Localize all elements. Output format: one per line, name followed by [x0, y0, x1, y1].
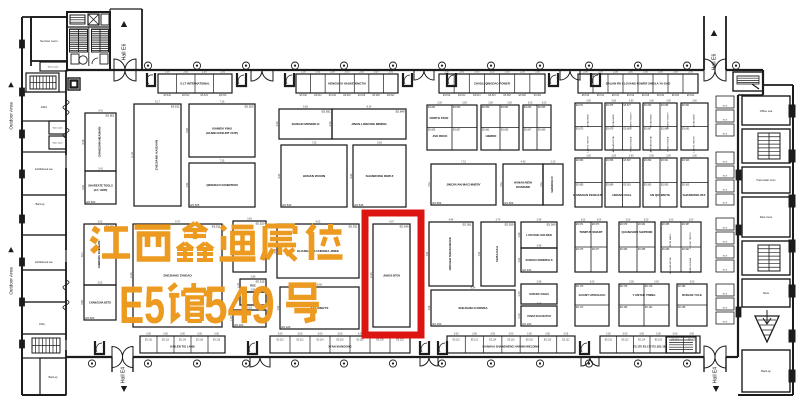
- svg-text:LUOHE TENGYI: LUOHE TENGYI: [690, 232, 692, 249]
- svg-text:E5.865: E5.865: [501, 130, 509, 132]
- svg-text:3.00: 3.00: [692, 101, 697, 103]
- svg-text:3.00: 3.00: [462, 103, 467, 105]
- svg-text:QINGDAO FANBITION: QINGDAO FANBITION: [206, 183, 237, 187]
- svg-text:E5.905: E5.905: [661, 185, 669, 187]
- svg-text:3.00: 3.00: [165, 71, 170, 74]
- svg-text:Store room: Store room: [53, 127, 63, 130]
- svg-text:E5.810: E5.810: [164, 95, 172, 97]
- svg-text:E5.511: E5.511: [212, 225, 221, 229]
- svg-text:2.20: 2.20: [518, 313, 521, 318]
- svg-text:E5.563: E5.563: [505, 201, 514, 205]
- svg-text:QUANZHOU SHIPFIND: QUANZHOU SHIPFIND: [622, 230, 653, 234]
- svg-text:Outdoor Area: Outdoor Area: [9, 267, 14, 295]
- svg-text:E5.116: E5.116: [507, 340, 515, 342]
- svg-text:3.96: 3.96: [537, 219, 542, 222]
- svg-text:3.63: 3.63: [82, 185, 85, 190]
- svg-text:3.00: 3.00: [202, 71, 207, 74]
- svg-text:E5.865: E5.865: [538, 107, 546, 109]
- svg-text:E5.829: E5.829: [245, 105, 254, 109]
- svg-text:E5.9: E5.9: [723, 294, 728, 296]
- svg-text:E5.863: E5.863: [524, 107, 532, 109]
- svg-text:3.00: 3.00: [545, 333, 550, 336]
- svg-text:E5.893: E5.893: [576, 160, 584, 162]
- svg-text:3.00: 3.00: [629, 156, 634, 158]
- svg-text:3.96: 3.96: [537, 303, 542, 306]
- svg-text:E5.812: E5.812: [458, 95, 466, 97]
- svg-text:Hall E4: Hall E4: [121, 367, 127, 383]
- svg-text:3.00: 3.00: [490, 71, 495, 74]
- svg-text:11.22: 11.22: [131, 151, 134, 157]
- svg-text:E5.112: E5.112: [162, 340, 170, 342]
- svg-text:3.00: 3.00: [490, 333, 495, 336]
- svg-text:E5.112: E5.112: [296, 340, 304, 342]
- svg-text:HEBEI RUNDA: HEBEI RUNDA: [689, 257, 692, 272]
- svg-text:(HUBEI EXSUNT OUP): (HUBEI EXSUNT OUP): [206, 131, 238, 135]
- svg-text:3.00: 3.00: [623, 333, 628, 336]
- svg-text:E5.812: E5.812: [182, 95, 190, 97]
- svg-text:E5.820: E5.820: [519, 95, 527, 97]
- svg-text:E5.891: E5.891: [682, 105, 690, 107]
- svg-text:E5.905: E5.905: [682, 185, 690, 187]
- svg-text:3.00: 3.00: [606, 333, 611, 336]
- svg-text:NORTH STAR: NORTH STAR: [430, 116, 450, 120]
- svg-text:E5.175 E5.177 E5.181-185: E5.175 E5.177 E5.181-185: [633, 344, 667, 348]
- svg-text:3.00: 3.00: [459, 71, 464, 74]
- svg-text:HAILEN TIG LANB: HAILEN TIG LANB: [170, 344, 194, 348]
- svg-text:E5.9: E5.9: [723, 106, 728, 108]
- svg-text:3.00: 3.00: [612, 101, 617, 103]
- svg-text:E5.112: E5.112: [621, 340, 629, 342]
- svg-text:3.00: 3.00: [488, 103, 493, 105]
- svg-text:SHAREATE TOOLS: SHAREATE TOOLS: [88, 184, 113, 188]
- svg-text:3.63: 3.63: [247, 218, 252, 221]
- svg-text:Store room: Store room: [48, 66, 59, 69]
- svg-text:E5.889: E5.889: [661, 129, 669, 131]
- svg-text:3.00: 3.00: [581, 220, 586, 222]
- svg-text:E5.855: E5.855: [428, 130, 436, 132]
- svg-text:ZHUOLI QINGDAO POWER: ZHUOLI QINGDAO POWER: [474, 82, 510, 86]
- svg-text:E5.818: E5.818: [504, 95, 512, 97]
- svg-text:JINTAI MACH: JINTAI MACH: [587, 114, 590, 128]
- svg-text:Store room: Store room: [53, 142, 63, 145]
- svg-text:DALIAN RH CLGUANG POWER SINOLA: DALIAN RH CLGUANG POWER SINOLA YA-GAO: [606, 82, 671, 86]
- svg-text:ZHEJIANG ZHIGAO: ZHEJIANG ZHIGAO: [163, 274, 192, 278]
- svg-text:JINCHUAN MACHINERY: JINCHUAN MACHINERY: [446, 183, 480, 187]
- svg-text:3.00: 3.00: [454, 333, 459, 336]
- svg-text:HUNAN WUXIN: HUNAN WUXIN: [303, 174, 326, 178]
- svg-text:E5.879: E5.879: [606, 129, 614, 131]
- svg-text:CHANGSHA BETO: CHANGSHA BETO: [89, 302, 111, 305]
- svg-text:AN QIU WEIYE: AN QIU WEIYE: [650, 193, 670, 197]
- svg-text:E5.110: E5.110: [276, 340, 284, 342]
- svg-text:JINTAI MACH: JINTAI MACH: [669, 233, 672, 247]
- svg-text:Exhibitioned use: Exhibitioned use: [35, 168, 53, 171]
- svg-text:Office use: Office use: [760, 109, 773, 113]
- svg-text:E5.114: E5.114: [638, 340, 646, 342]
- svg-text:E5.176: E5.176: [620, 286, 628, 288]
- svg-text:E5.873: E5.873: [576, 129, 584, 131]
- svg-text:3.00: 3.00: [220, 71, 225, 74]
- svg-text:SHANDONG DERUI: SHANDONG DERUI: [366, 174, 394, 178]
- svg-text:E5.875: E5.875: [606, 105, 614, 107]
- svg-text:3.00: 3.00: [520, 71, 525, 74]
- svg-text:5.83: 5.83: [186, 128, 189, 133]
- svg-text:E5.816: E5.816: [219, 95, 227, 97]
- svg-text:7.04: 7.04: [478, 251, 481, 256]
- svg-text:3.00: 3.00: [673, 71, 678, 74]
- svg-text:6.82: 6.82: [350, 173, 353, 178]
- svg-text:E5.9: E5.9: [723, 176, 728, 178]
- svg-text:E5.9: E5.9: [723, 322, 728, 324]
- svg-text:E5.810: E5.810: [582, 95, 590, 97]
- svg-text:E5.811: E5.811: [171, 105, 180, 109]
- svg-text:E5.9: E5.9: [723, 242, 728, 244]
- svg-text:3.00: 3.00: [475, 71, 480, 74]
- svg-text:JIANGSHA SHUANGSHUAN: JIANGSHA SHUANGSHUAN: [449, 237, 452, 270]
- svg-text:3.00: 3.00: [666, 156, 671, 158]
- svg-text:E5.172: E5.172: [576, 307, 584, 309]
- svg-text:E5.820: E5.820: [373, 95, 381, 97]
- svg-text:3.00: 3.00: [345, 71, 350, 74]
- svg-text:3.00: 3.00: [692, 156, 697, 158]
- svg-text:3.00: 3.00: [673, 333, 678, 336]
- svg-text:E5.9: E5.9: [723, 190, 728, 192]
- svg-text:E5.178: E5.178: [645, 286, 653, 288]
- svg-text:3.00: 3.00: [359, 71, 364, 74]
- svg-text:E5.877: E5.877: [624, 105, 632, 107]
- svg-text:3.00: 3.00: [666, 101, 671, 103]
- svg-text:LUOHE TENGYI: LUOHE TENGYI: [668, 112, 670, 129]
- svg-text:SUIZHOU SINODRILLS: SUIZHOU SINODRILLS: [525, 259, 552, 262]
- svg-text:6.38: 6.38: [82, 139, 85, 144]
- svg-text:GUANT H'DRAULIC: GUANT H'DRAULIC: [579, 293, 607, 297]
- svg-text:3.00: 3.00: [374, 71, 379, 74]
- svg-text:3.96: 3.96: [537, 245, 542, 248]
- svg-text:LUOHE TENGYI: LUOHE TENGYI: [694, 136, 696, 153]
- svg-text:E5.883: E5.883: [644, 105, 652, 107]
- svg-text:E5.851: E5.851: [428, 107, 436, 109]
- svg-text:E5.114: E5.114: [316, 340, 324, 342]
- svg-text:3.96: 3.96: [428, 305, 431, 310]
- svg-text:3.00: 3.00: [197, 333, 202, 336]
- svg-text:HEBEI RUNDA: HEBEI RUNDA: [667, 136, 670, 151]
- svg-text:3.00: 3.00: [590, 282, 595, 284]
- svg-text:E5.903: E5.903: [682, 160, 690, 162]
- svg-text:SHANDONG RUI: SHANDONG RUI: [683, 193, 706, 197]
- svg-text:3.00: 3.00: [644, 220, 649, 222]
- svg-text:E5.816: E5.816: [488, 95, 496, 97]
- svg-text:MANSHAN FENGJUN: MANSHAN FENGJUN: [573, 193, 602, 197]
- svg-text:LUOYANG GOLDEN: LUOYANG GOLDEN: [526, 233, 551, 237]
- svg-text:E5.901: E5.901: [624, 185, 632, 187]
- svg-text:CEISA DALI: CEISA DALI: [495, 246, 499, 262]
- svg-text:7.15: 7.15: [461, 161, 466, 164]
- svg-text:4.62: 4.62: [277, 305, 280, 310]
- svg-text:E5.822: E5.822: [387, 95, 395, 97]
- svg-text:E5.9: E5.9: [723, 256, 728, 258]
- svg-text:E5.112: E5.112: [471, 340, 479, 342]
- svg-text:3.00: 3.00: [689, 333, 694, 336]
- svg-text:2.20: 2.20: [518, 291, 521, 296]
- svg-text:GUANGZHOU KINGDA JINKE: GUANGZHOU KINGDA JINKE: [297, 249, 339, 253]
- svg-text:E5.116: E5.116: [196, 340, 204, 342]
- svg-text:LUOHE TENGYI: LUOHE TENGYI: [588, 136, 590, 153]
- svg-text:E5.893: E5.893: [682, 129, 690, 131]
- svg-text:3.00: 3.00: [509, 333, 514, 336]
- svg-text:DIAMOND: DIAMOND: [516, 185, 530, 189]
- svg-text:JINAN LINGONG MINING: JINAN LINGONG MINING: [351, 122, 387, 126]
- svg-text:YANGT.N HUJIATUO: YANGT.N HUJIATUO: [527, 315, 551, 318]
- svg-text:E5.812: E5.812: [597, 95, 605, 97]
- svg-text:ZHEJIANG KAISHAN: ZHEJIANG KAISHAN: [155, 139, 159, 170]
- svg-text:E5.9: E5.9: [723, 270, 728, 272]
- svg-text:JINTAI MACH: JINTAI MACH: [650, 114, 653, 128]
- svg-text:E5.114: E5.114: [489, 340, 497, 342]
- svg-text:Y ANTAK YIWNG: Y ANTAK YIWNG: [632, 293, 656, 297]
- svg-text:E5.820: E5.820: [657, 95, 665, 97]
- svg-text:3.00: 3.00: [180, 333, 185, 336]
- svg-text:E5.824: E5.824: [687, 95, 695, 97]
- svg-text:E5.885: E5.885: [661, 105, 669, 107]
- svg-text:Back-up: Back-up: [49, 376, 58, 379]
- svg-text:4.07: 4.07: [389, 221, 394, 224]
- svg-text:CHENGDU HUESHAN: CHENGDU HUESHAN: [97, 241, 101, 269]
- svg-text:LUOHE TENGYI: LUOHE TENGYI: [630, 112, 632, 129]
- svg-text:3.00: 3.00: [643, 71, 648, 74]
- svg-text:3.00: 3.00: [535, 71, 540, 74]
- svg-text:3.30: 3.30: [276, 121, 279, 126]
- svg-text:7.26: 7.26: [220, 101, 225, 104]
- svg-text:E5.859: E5.859: [482, 107, 490, 109]
- svg-text:3.96: 3.96: [537, 281, 542, 284]
- svg-text:E5.971: E5.971: [576, 224, 584, 226]
- svg-text:3.00: 3.00: [654, 282, 659, 284]
- svg-text:JINTAI MACH: JINTAI MACH: [693, 114, 696, 128]
- svg-text:3.00: 3.00: [639, 333, 644, 336]
- svg-text:8.69: 8.69: [317, 284, 322, 287]
- svg-text:E5.9: E5.9: [723, 120, 728, 122]
- svg-text:E5.887: E5.887: [644, 129, 652, 131]
- svg-text:3.00: 3.00: [338, 333, 343, 336]
- svg-text:3.00: 3.00: [388, 71, 393, 74]
- svg-text:3.00: 3.00: [183, 71, 188, 74]
- svg-text:G.LT INTERNATIONAL: G.LT INTERNATIONAL: [180, 82, 210, 86]
- svg-text:E5.116: E5.116: [655, 340, 663, 342]
- svg-text:E5.895: E5.895: [576, 185, 584, 187]
- svg-text:3.00: 3.00: [507, 103, 512, 105]
- svg-text:E5.985: E5.985: [638, 249, 646, 251]
- svg-text:E5.899: E5.899: [644, 160, 652, 162]
- svg-text:E5.122: E5.122: [562, 340, 570, 342]
- svg-text:E5.120: E5.120: [376, 340, 384, 342]
- svg-text:SUZHOU SILEX: SUZHOU SILEX: [529, 292, 549, 296]
- svg-text:3.00: 3.00: [689, 220, 694, 222]
- svg-text:Outdoor Area: Outdoor Area: [9, 102, 14, 130]
- svg-text:E5.180: E5.180: [620, 307, 628, 309]
- svg-text:E5.361: E5.361: [463, 223, 472, 227]
- svg-text:E5.903: E5.903: [644, 185, 652, 187]
- svg-text:E5.849: E5.849: [396, 110, 405, 114]
- svg-text:E5.899: E5.899: [606, 185, 614, 187]
- svg-text:E5.981: E5.981: [638, 224, 646, 226]
- svg-text:3.00: 3.00: [629, 101, 634, 103]
- svg-text:E5.118: E5.118: [356, 340, 364, 342]
- svg-text:Back-up: Back-up: [36, 203, 45, 206]
- svg-text:3.00: 3.00: [472, 333, 477, 336]
- svg-text:E5.545: E5.545: [355, 203, 364, 207]
- svg-text:CHANGSHA HEASHAN: CHANGSHA HEASHAN: [98, 127, 102, 158]
- svg-text:E5.569: E5.569: [547, 223, 556, 227]
- svg-text:5.83: 5.83: [377, 142, 382, 145]
- svg-text:3.52: 3.52: [98, 282, 103, 285]
- svg-text:3.00: 3.00: [669, 220, 674, 222]
- svg-text:E5.500: E5.500: [87, 200, 96, 204]
- svg-text:3.00: 3.00: [586, 101, 591, 103]
- svg-text:3.00: 3.00: [330, 71, 335, 74]
- svg-text:7.04: 7.04: [426, 251, 429, 256]
- svg-text:E5.340: E5.340: [523, 268, 532, 272]
- svg-text:3.00: 3.00: [649, 156, 654, 158]
- svg-text:3.00: 3.00: [278, 333, 283, 336]
- svg-text:TEMPUS SMART: TEMPUS SMART: [579, 230, 602, 234]
- svg-text:lobby: lobby: [41, 105, 48, 109]
- svg-text:7.26: 7.26: [312, 142, 317, 145]
- svg-text:3.00: 3.00: [583, 71, 588, 74]
- svg-text:E5.150: E5.150: [433, 322, 442, 326]
- svg-text:E5.814: E5.814: [201, 95, 209, 97]
- svg-text:3.00: 3.00: [629, 282, 634, 284]
- svg-text:E5.989: E5.989: [662, 249, 670, 251]
- svg-text:HENGSHUI HAOKE XINGTAI: HENGSHUI HAOKE XINGTAI: [328, 82, 366, 86]
- svg-text:E5.816: E5.816: [627, 95, 635, 97]
- svg-text:E5.871: E5.871: [576, 105, 584, 107]
- svg-text:JSK ROCK: JSK ROCK: [433, 134, 449, 138]
- svg-text:3.00: 3.00: [437, 103, 442, 105]
- svg-text:3.00: 3.00: [527, 333, 532, 336]
- svg-text:E5.810: E5.810: [300, 95, 308, 97]
- svg-text:HENAN COAL: HENAN COAL: [612, 193, 632, 197]
- svg-text:6.71: 6.71: [81, 252, 84, 257]
- svg-text:E5.9: E5.9: [723, 134, 728, 136]
- svg-text:E5.987: E5.987: [682, 224, 690, 226]
- svg-text:7.26: 7.26: [220, 160, 225, 163]
- svg-text:lobby: lobby: [39, 323, 46, 326]
- svg-text:ANSHAN BOTAI: ANSHAN BOTAI: [669, 257, 672, 274]
- svg-text:JIANGXI SITON: JIANGXI SITON: [383, 275, 400, 278]
- svg-text:E5.822: E5.822: [534, 95, 542, 97]
- svg-text:E5.188: E5.188: [678, 307, 686, 309]
- svg-text:2.64: 2.64: [518, 257, 521, 262]
- svg-text:E5.118: E5.118: [213, 340, 221, 342]
- svg-text:XI'AN XIANGONG: XI'AN XIANGONG: [328, 344, 351, 348]
- svg-text:E5.812: E5.812: [314, 95, 322, 97]
- svg-text:3.00: 3.00: [690, 282, 695, 284]
- svg-text:E5.531: E5.531: [349, 225, 358, 229]
- svg-text:ANSHAN BOTAI: ANSHAN BOTAI: [650, 136, 653, 153]
- svg-text:549: 549: [204, 277, 275, 336]
- svg-text:3.00: 3.00: [656, 333, 661, 336]
- svg-text:ZHEJIANG KOONSA: ZHEJIANG KOONSA: [458, 306, 488, 310]
- svg-text:E5.897: E5.897: [624, 160, 632, 162]
- svg-text:Back-up: Back-up: [761, 369, 771, 373]
- svg-text:9.24: 9.24: [471, 287, 476, 290]
- svg-text:9.79: 9.79: [175, 221, 180, 224]
- svg-text:E5.9: E5.9: [723, 162, 728, 164]
- svg-text:E5.975: E5.975: [576, 249, 584, 251]
- svg-text:E5.9: E5.9: [723, 203, 728, 205]
- svg-text:E5.985: E5.985: [662, 224, 670, 226]
- svg-text:4.51: 4.51: [540, 182, 543, 187]
- svg-text:4.51: 4.51: [428, 182, 431, 187]
- svg-text:JINTAI MACH: JINTAI MACH: [612, 114, 615, 128]
- svg-text:E5.520: E5.520: [256, 222, 265, 226]
- svg-text:4.40: 4.40: [521, 161, 526, 164]
- svg-text:E5.110: E5.110: [145, 340, 153, 342]
- svg-text:6.82: 6.82: [278, 173, 281, 178]
- svg-text:E5.895: E5.895: [606, 160, 614, 162]
- svg-text:3.00: 3.00: [626, 220, 631, 222]
- svg-text:3.00: 3.00: [586, 156, 591, 158]
- svg-text:E5.973: E5.973: [592, 224, 600, 226]
- svg-text:E5.182: E5.182: [645, 307, 653, 309]
- svg-text:E5.863: E5.863: [482, 130, 490, 132]
- svg-text:E5.814: E5.814: [329, 95, 337, 97]
- svg-text:Service room: Service room: [40, 39, 58, 43]
- svg-text:E5.831: E5.831: [322, 110, 331, 114]
- svg-text:E5.559: E5.559: [505, 223, 514, 227]
- svg-text:HEBEI RUNDA: HEBEI RUNDA: [629, 136, 632, 151]
- svg-text:4.84: 4.84: [186, 182, 189, 187]
- svg-text:E5.549: E5.549: [400, 225, 409, 229]
- svg-text:E5.186: E5.186: [678, 286, 686, 288]
- svg-text:3.00: 3.00: [528, 103, 533, 105]
- svg-text:3.00: 3.00: [613, 71, 618, 74]
- svg-text:3.00: 3.00: [649, 101, 654, 103]
- svg-text:E5.818: E5.818: [642, 95, 650, 97]
- svg-text:E5.991: E5.991: [682, 249, 690, 251]
- svg-text:HEMOD: HEMOD: [486, 134, 497, 138]
- svg-text:E5.867: E5.867: [524, 130, 532, 132]
- svg-text:E5.110: E5.110: [605, 340, 613, 342]
- svg-text:3.41: 3.41: [98, 168, 103, 171]
- svg-text:E5.861: E5.861: [501, 107, 509, 109]
- svg-text:E5.533: E5.533: [283, 203, 292, 207]
- svg-text:E5.810: E5.810: [443, 95, 451, 97]
- svg-text:E5.120: E5.120: [544, 340, 552, 342]
- svg-text:3.00: 3.00: [542, 103, 547, 105]
- svg-text:E5.901: E5.901: [661, 160, 669, 162]
- svg-text:E5.9: E5.9: [723, 228, 728, 230]
- svg-text:E5.122: E5.122: [396, 340, 404, 342]
- svg-text:E5.977: E5.977: [592, 249, 600, 251]
- svg-text:4.84: 4.84: [449, 219, 454, 222]
- svg-text:Rest room: Rest room: [760, 215, 773, 219]
- svg-text:E5.881: E5.881: [624, 129, 632, 131]
- svg-text:3.41: 3.41: [98, 110, 103, 113]
- svg-text:3.00: 3.00: [612, 156, 617, 158]
- svg-text:11.33: 11.33: [370, 272, 373, 278]
- svg-text:E5.160: E5.160: [523, 322, 532, 326]
- svg-text:Hand wash room: Hand wash room: [757, 179, 776, 182]
- svg-text:3.00: 3.00: [688, 71, 693, 74]
- svg-text:3.00: 3.00: [301, 71, 306, 74]
- svg-text:E5.814: E5.814: [612, 95, 620, 97]
- svg-text:SHANDONG W: SHANDONG W: [551, 176, 554, 193]
- svg-text:3.74: 3.74: [496, 219, 501, 222]
- svg-text:3.52: 3.52: [98, 221, 103, 224]
- svg-text:E5.170: E5.170: [576, 286, 584, 288]
- svg-text:(GY, HOPI): (GY, HOPI): [94, 188, 108, 192]
